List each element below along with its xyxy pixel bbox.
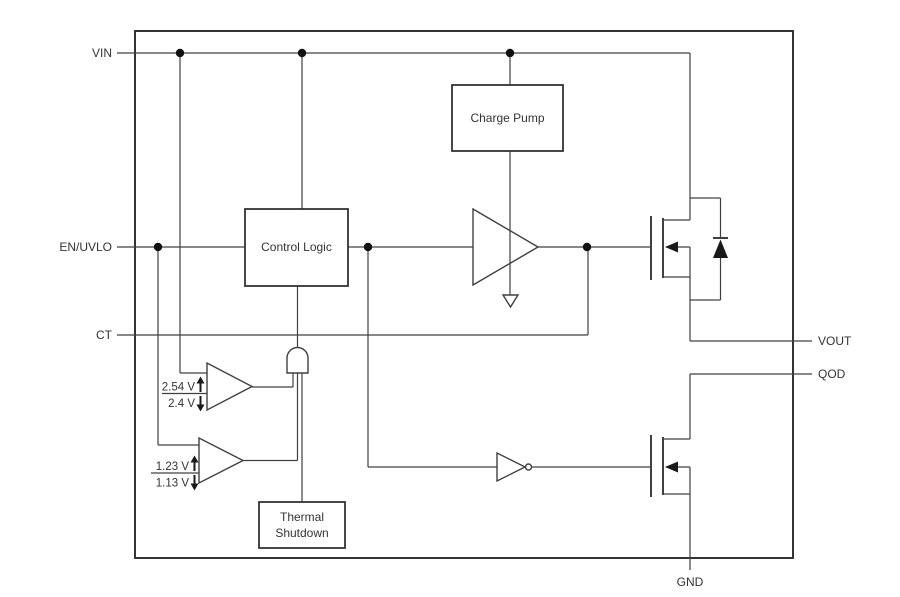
down-arrow-icon <box>191 484 199 491</box>
pin-label-en-uvlo: EN/UVLO <box>59 240 112 254</box>
uvlo-rising-threshold-label: 2.54 V <box>162 382 196 394</box>
thermal-shutdown-label-line1: Thermal <box>280 510 324 524</box>
fet-arrow-icon <box>665 242 678 253</box>
charge-pump-label: Charge Pump <box>470 111 544 125</box>
pass-fet <box>651 216 690 280</box>
inverter <box>497 453 525 481</box>
body-diode <box>713 238 728 258</box>
fet-arrow-icon <box>665 462 678 473</box>
qod-fet <box>651 435 690 497</box>
down-arrow-icon <box>197 405 205 412</box>
pin-label-vin: VIN <box>92 46 112 60</box>
junction-dot <box>298 49 306 57</box>
ground-symbol-icon <box>503 295 518 307</box>
functional-block-diagram: 2.54 V 2.4 V 1.23 V 1.13 V VIN EN/UVLO C… <box>0 0 900 597</box>
up-arrow-icon <box>197 377 205 384</box>
thermal-shutdown-label-line2: Shutdown <box>275 526 328 540</box>
inverter-bubble-icon <box>526 464 532 470</box>
junction-dot <box>506 49 514 57</box>
junction-dot <box>364 243 372 251</box>
thermal-shutdown-block <box>259 502 345 548</box>
diode-arrow-icon <box>713 240 728 259</box>
and-gate <box>287 348 308 374</box>
en-rising-threshold-label: 1.23 V <box>156 461 190 473</box>
junction-dot <box>154 243 162 251</box>
uvlo-comparator <box>207 363 252 410</box>
pin-label-qod: QOD <box>818 367 846 381</box>
pin-label-ct: CT <box>96 328 113 342</box>
diagram-canvas: 2.54 V 2.4 V 1.23 V 1.13 V VIN EN/UVLO C… <box>0 0 900 597</box>
en-thresholds: 1.23 V 1.13 V <box>151 456 199 491</box>
pin-label-vout: VOUT <box>818 334 852 348</box>
en-comparator <box>199 438 243 483</box>
uvlo-falling-threshold-label: 2.4 V <box>168 398 195 410</box>
pin-label-gnd: GND <box>677 575 704 589</box>
up-arrow-icon <box>191 456 199 463</box>
junction-dot <box>583 243 591 251</box>
gate-driver-buffer <box>473 209 538 285</box>
uvlo-thresholds: 2.54 V 2.4 V <box>162 377 207 412</box>
junction-dot <box>176 49 184 57</box>
en-falling-threshold-label: 1.13 V <box>156 478 190 490</box>
control-logic-label: Control Logic <box>261 240 332 254</box>
